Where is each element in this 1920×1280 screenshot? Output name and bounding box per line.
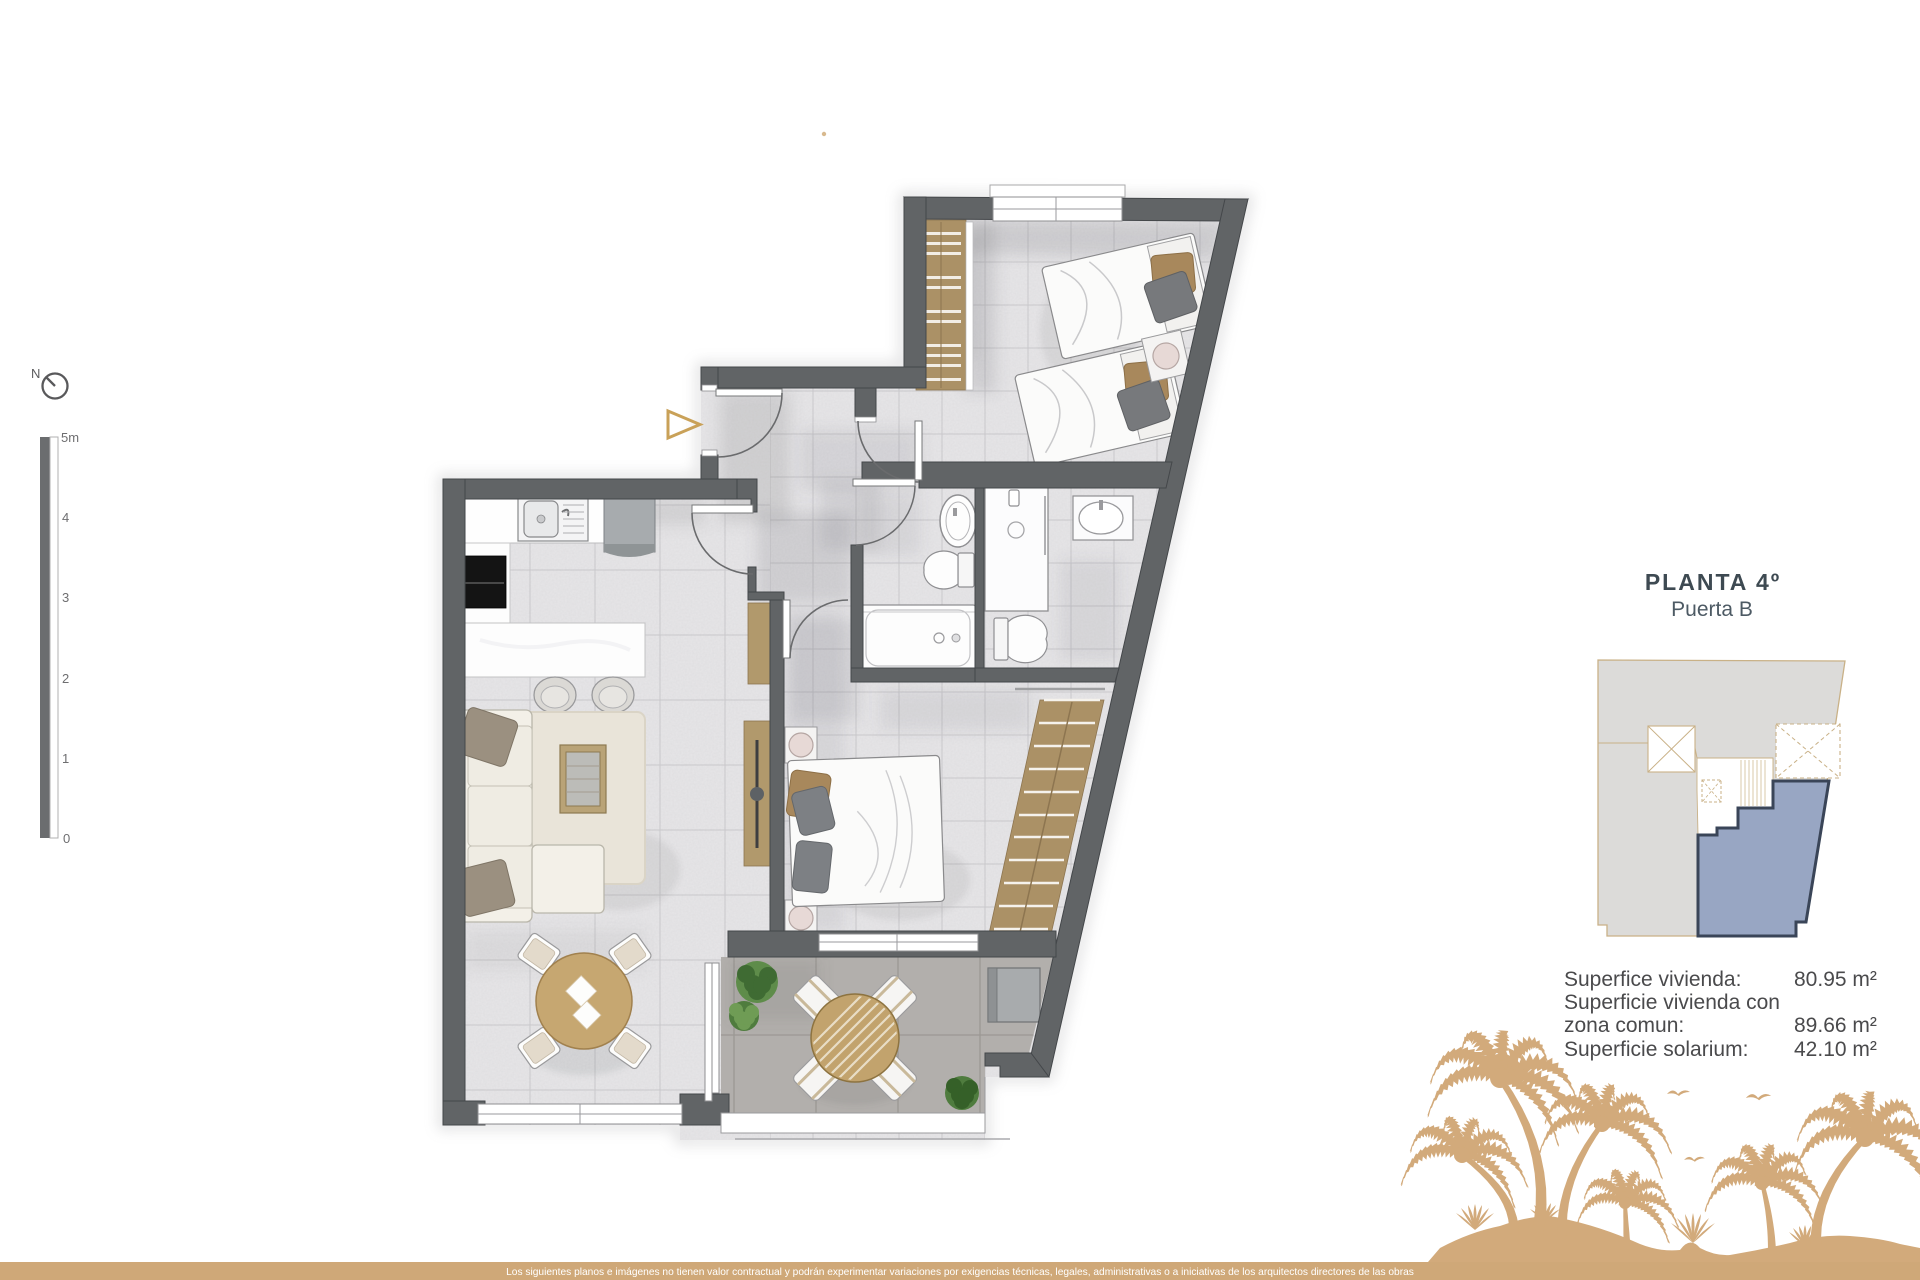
svg-text:80.95 m²: 80.95 m² — [1794, 968, 1877, 991]
svg-text:89.66 m²: 89.66 m² — [1794, 1014, 1877, 1037]
svg-text:2: 2 — [62, 671, 69, 686]
svg-text:Superficie solarium:: Superficie solarium: — [1564, 1038, 1748, 1061]
svg-text:Superficie vivienda con: Superficie vivienda con — [1564, 991, 1780, 1014]
svg-text:Puerta B: Puerta B — [1671, 598, 1753, 621]
svg-text:5m: 5m — [61, 430, 79, 445]
svg-text:Los siguientes planos e imágen: Los siguientes planos e imágenes no tien… — [506, 1267, 1414, 1278]
svg-text:zona comun:: zona comun: — [1564, 1014, 1684, 1037]
svg-text:1: 1 — [62, 751, 69, 766]
svg-text:42.10 m²: 42.10 m² — [1794, 1038, 1877, 1061]
svg-text:PLANTA 4º: PLANTA 4º — [1645, 569, 1781, 595]
svg-text:0: 0 — [63, 831, 70, 846]
svg-text:4: 4 — [62, 510, 69, 525]
svg-text:3: 3 — [62, 590, 69, 605]
svg-text:Superfice vivienda:: Superfice vivienda: — [1564, 968, 1741, 991]
svg-text:N: N — [31, 366, 40, 381]
